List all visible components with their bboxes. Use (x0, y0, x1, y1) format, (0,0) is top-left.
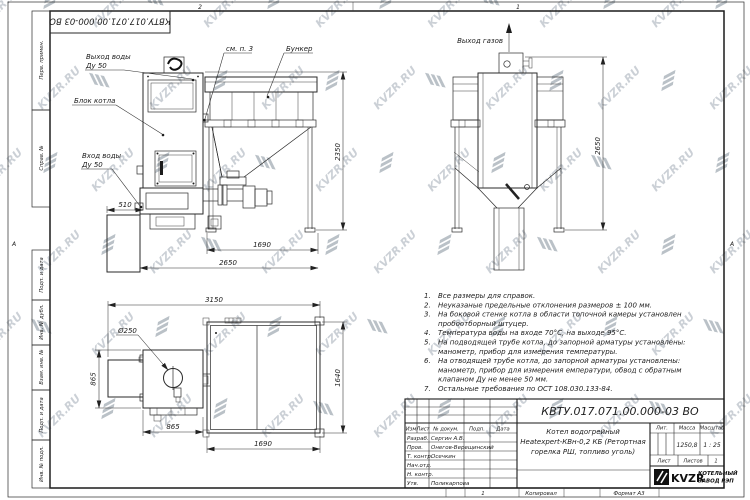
kvzr-logo: KVZR КОТЕЛЬНЫЙ ЗАВОД РЭП (654, 469, 738, 485)
note-5-num: 5. (424, 339, 431, 347)
watermark-logo-glyph (201, 237, 222, 252)
row-utv-role: Утв. (407, 481, 419, 487)
watermark-logo-glyph (661, 70, 675, 91)
margin-fields: Перв. примен. Справ. № Подп. и дата Инв.… (32, 11, 50, 488)
zone-number-bottom: 1 (481, 491, 485, 497)
note-6-line-2: манометр, прибор для измерения емператур… (438, 366, 682, 374)
watermark-text: KVZR.RU (147, 64, 195, 112)
col-data: Дата (495, 427, 509, 433)
watermark-text: KVZR.RU (371, 64, 419, 112)
watermark-text: KVZR.RU (425, 146, 473, 194)
copied-label: Копировал (525, 491, 557, 497)
notes-list: 1. Все размеры для справок. 2. Неуказаны… (424, 292, 686, 393)
product-name-line-1: Котел водогрейный (546, 428, 620, 436)
format-label: Формат А3 (613, 491, 645, 497)
watermark-text: KVZR.RU (0, 146, 25, 194)
watermark-logo-glyph (715, 152, 729, 173)
product-name-line-2: Heatexpert-КВн-0,2 КБ (Ретортная (520, 438, 645, 446)
margin-field-vzam-inv: Взам. инв. № (39, 349, 45, 384)
watermark-logo-glyph (267, 0, 281, 9)
scale-label: Масштаб (700, 426, 725, 432)
row-tkontr-name: Осечкин (431, 454, 456, 460)
row-nkontr-role: Н. контр. (407, 472, 434, 478)
watermark-text: KVZR.RU (201, 310, 249, 358)
watermark-logo-glyph (89, 73, 110, 88)
watermark-text: KVZR.RU (201, 146, 249, 194)
watermark-text: KVZR.RU (595, 64, 643, 112)
product-name-line-3: горелка РШ, топливо уголь) (531, 448, 635, 456)
watermark-text: KVZR.RU (707, 64, 750, 112)
watermark-logo-glyph (267, 316, 281, 337)
note-3-line-2: пробоотборный штуцер. (438, 320, 529, 328)
watermark-logo-glyph (379, 0, 393, 9)
factory-line-2: ЗАВОД РЭП (698, 479, 734, 485)
dim-865-bottom: 865 (166, 423, 180, 431)
dim-1690-front: 1690 (253, 241, 271, 249)
watermark-text: KVZR.RU (147, 228, 195, 276)
note-4: Температура воды на входе 70°С, на выход… (438, 329, 626, 337)
note-2-num: 2. (424, 301, 431, 309)
watermark-logo-glyph (661, 234, 675, 255)
zone-letter-right: А (729, 241, 734, 248)
dim-2350: 2350 (334, 143, 342, 161)
dim-865-left: 865 (90, 372, 98, 386)
col-list: Лист (415, 427, 430, 433)
blueprint-sheet: KVZR.RUKVZR.RUKVZR.RUKVZR.RUKVZR.RUKVZR.… (0, 0, 750, 500)
label-out-water-dn: Ду 50 (85, 62, 107, 70)
row-prov-role: Пров. (407, 445, 423, 451)
top-doc-number: КВТУ.017.071.00.000-03 ВО (49, 16, 171, 26)
col-izm: Изм (406, 427, 417, 433)
lit-label: Лит. (655, 426, 668, 432)
watermark-logo-glyph (437, 234, 451, 255)
label-in-water: Вход воды (82, 152, 122, 160)
note-7: Остальные требования по ОСТ 108.030.133-… (438, 385, 613, 393)
sheet-label: Лист (656, 459, 671, 465)
factory-line-1: КОТЕЛЬНЫЙ (698, 469, 738, 477)
watermark-logo-glyph (549, 70, 563, 91)
note-4-num: 4. (424, 329, 431, 337)
watermark-logo-glyph (325, 70, 339, 91)
row-nachotd-role: Нач.отд. (407, 463, 432, 469)
note-3-num: 3. (424, 311, 431, 319)
col-podp: Подп. (469, 427, 485, 433)
row-utv-name: Поликарпова (431, 481, 470, 487)
watermark-logo-glyph (715, 0, 729, 9)
watermark-logo-glyph (491, 152, 505, 173)
watermark-logo-glyph (213, 398, 227, 419)
note-6-num: 6. (424, 357, 431, 365)
watermark-text: KVZR.RU (649, 146, 697, 194)
watermark-text: KVZR.RU (201, 0, 249, 30)
watermark-text: KVZR.RU (0, 310, 25, 358)
watermark-logo-glyph (591, 155, 612, 170)
scale-value: 1 : 25 (703, 442, 720, 449)
note-1: Все размеры для справок. (438, 292, 535, 300)
note-3-line-1: На боковой стенке котла в области топочн… (438, 311, 682, 319)
label-see-note-3: см. п. 3 (226, 45, 253, 53)
watermark-logo-glyph (479, 0, 500, 6)
doc-number: КВТУ.017.071.00.000-03 ВО (541, 405, 699, 418)
watermark-logo-glyph (537, 237, 558, 252)
row-razrab-role: Разраб. (407, 436, 429, 442)
watermark-text: KVZR.RU (595, 228, 643, 276)
mass-label: Масса (679, 426, 696, 432)
dim-1640: 1640 (334, 369, 342, 387)
row-tkontr-role: Т. контр. (407, 454, 433, 460)
dim-3150: 3150 (205, 296, 223, 304)
watermark-logo-glyph (101, 234, 115, 255)
watermark-logo-glyph (603, 0, 617, 9)
watermark-logo-glyph (101, 398, 115, 419)
margin-field-inv-podl: Инв. № подл. (39, 446, 45, 482)
sheets-value: 1 (714, 459, 717, 465)
watermark-logo-glyph (703, 319, 724, 334)
margin-field-podp-data-1: Подп. и дата (39, 257, 45, 292)
margin-field-sprav-no: Справ. № (39, 145, 45, 170)
watermark-text: KVZR.RU (371, 228, 419, 276)
watermark-logo-glyph (255, 155, 276, 170)
note-1-num: 1. (424, 292, 431, 300)
label-bunker: Бункер (286, 45, 313, 53)
watermark-logo-glyph (313, 401, 334, 416)
watermark-text: KVZR.RU (259, 228, 307, 276)
zone-number-top-right: 1 (516, 4, 520, 11)
margin-field-inv-dubl: Инв. № дубл. (39, 304, 45, 340)
label-gas-out: Выход газов (457, 37, 503, 45)
note-6-line-3: клапаном Ду не менее 50 мм. (438, 376, 548, 384)
watermark-logo-glyph (367, 319, 388, 334)
row-razrab-name: Сергин А.В. (431, 436, 465, 442)
mass-value: 1250,8 (677, 442, 698, 449)
watermark-text: KVZR.RU (0, 0, 25, 30)
watermark-logo-glyph (379, 152, 393, 173)
note-2: Неуказаные предельные отклонения размеро… (438, 301, 652, 309)
watermark-logo-glyph (425, 73, 446, 88)
watermark-logo-glyph (325, 234, 339, 255)
dim-1690-top: 1690 (254, 440, 272, 448)
watermark-logo-glyph (155, 316, 169, 337)
label-diameter-250: Ø250 (117, 327, 137, 335)
watermark-logo-glyph (143, 0, 164, 6)
watermark-text: KVZR.RU (259, 64, 307, 112)
zone-number-top-left: 2 (198, 4, 202, 11)
watermark-logo-glyph (437, 398, 451, 419)
label-in-water-dn: Ду 50 (81, 161, 103, 169)
note-5-line-2: манометр, прибор для измерения температу… (438, 348, 617, 356)
watermark-text: KVZR.RU (425, 0, 473, 30)
sheets-label: Листов (682, 459, 702, 465)
margin-field-perv-primen: Перв. примен. (39, 41, 45, 80)
side-view: Выход газов 2650 (451, 23, 607, 270)
margin-field-podp-data-2: Подп. и дата (39, 397, 45, 432)
note-7-num: 7. (424, 385, 431, 393)
note-6-line-1: На отводящей трубе котла, до запорной ар… (438, 357, 680, 365)
watermark-text: KVZR.RU (649, 0, 697, 30)
row-prov-name: Онегов-Верещинский (431, 445, 494, 451)
watermark-logo-glyph (43, 0, 57, 9)
note-5-line-1: На подводящей трубе котла, до запорной а… (438, 339, 686, 347)
dim-2650-side: 2650 (594, 137, 602, 155)
dim-510: 510 (118, 201, 132, 209)
watermark-text: KVZR.RU (483, 64, 531, 112)
watermark-text: KVZR.RU (537, 0, 585, 30)
label-boiler-block: Блок котла (74, 97, 115, 105)
label-out-water: Выход воды (86, 53, 131, 61)
bottom-strip: 1 Копировал Формат А3 (446, 488, 659, 497)
col-doc: № докум. (432, 427, 459, 433)
watermark-text: KVZR.RU (313, 0, 361, 30)
title-block: КВТУ.017.071.00.000-03 ВО Котел водогрей… (405, 399, 738, 488)
watermark-logo-glyph (213, 70, 227, 91)
watermark-text: KVZR.RU (707, 228, 750, 276)
dim-2650-front: 2650 (219, 259, 237, 267)
zone-letter-left: А (11, 241, 16, 248)
